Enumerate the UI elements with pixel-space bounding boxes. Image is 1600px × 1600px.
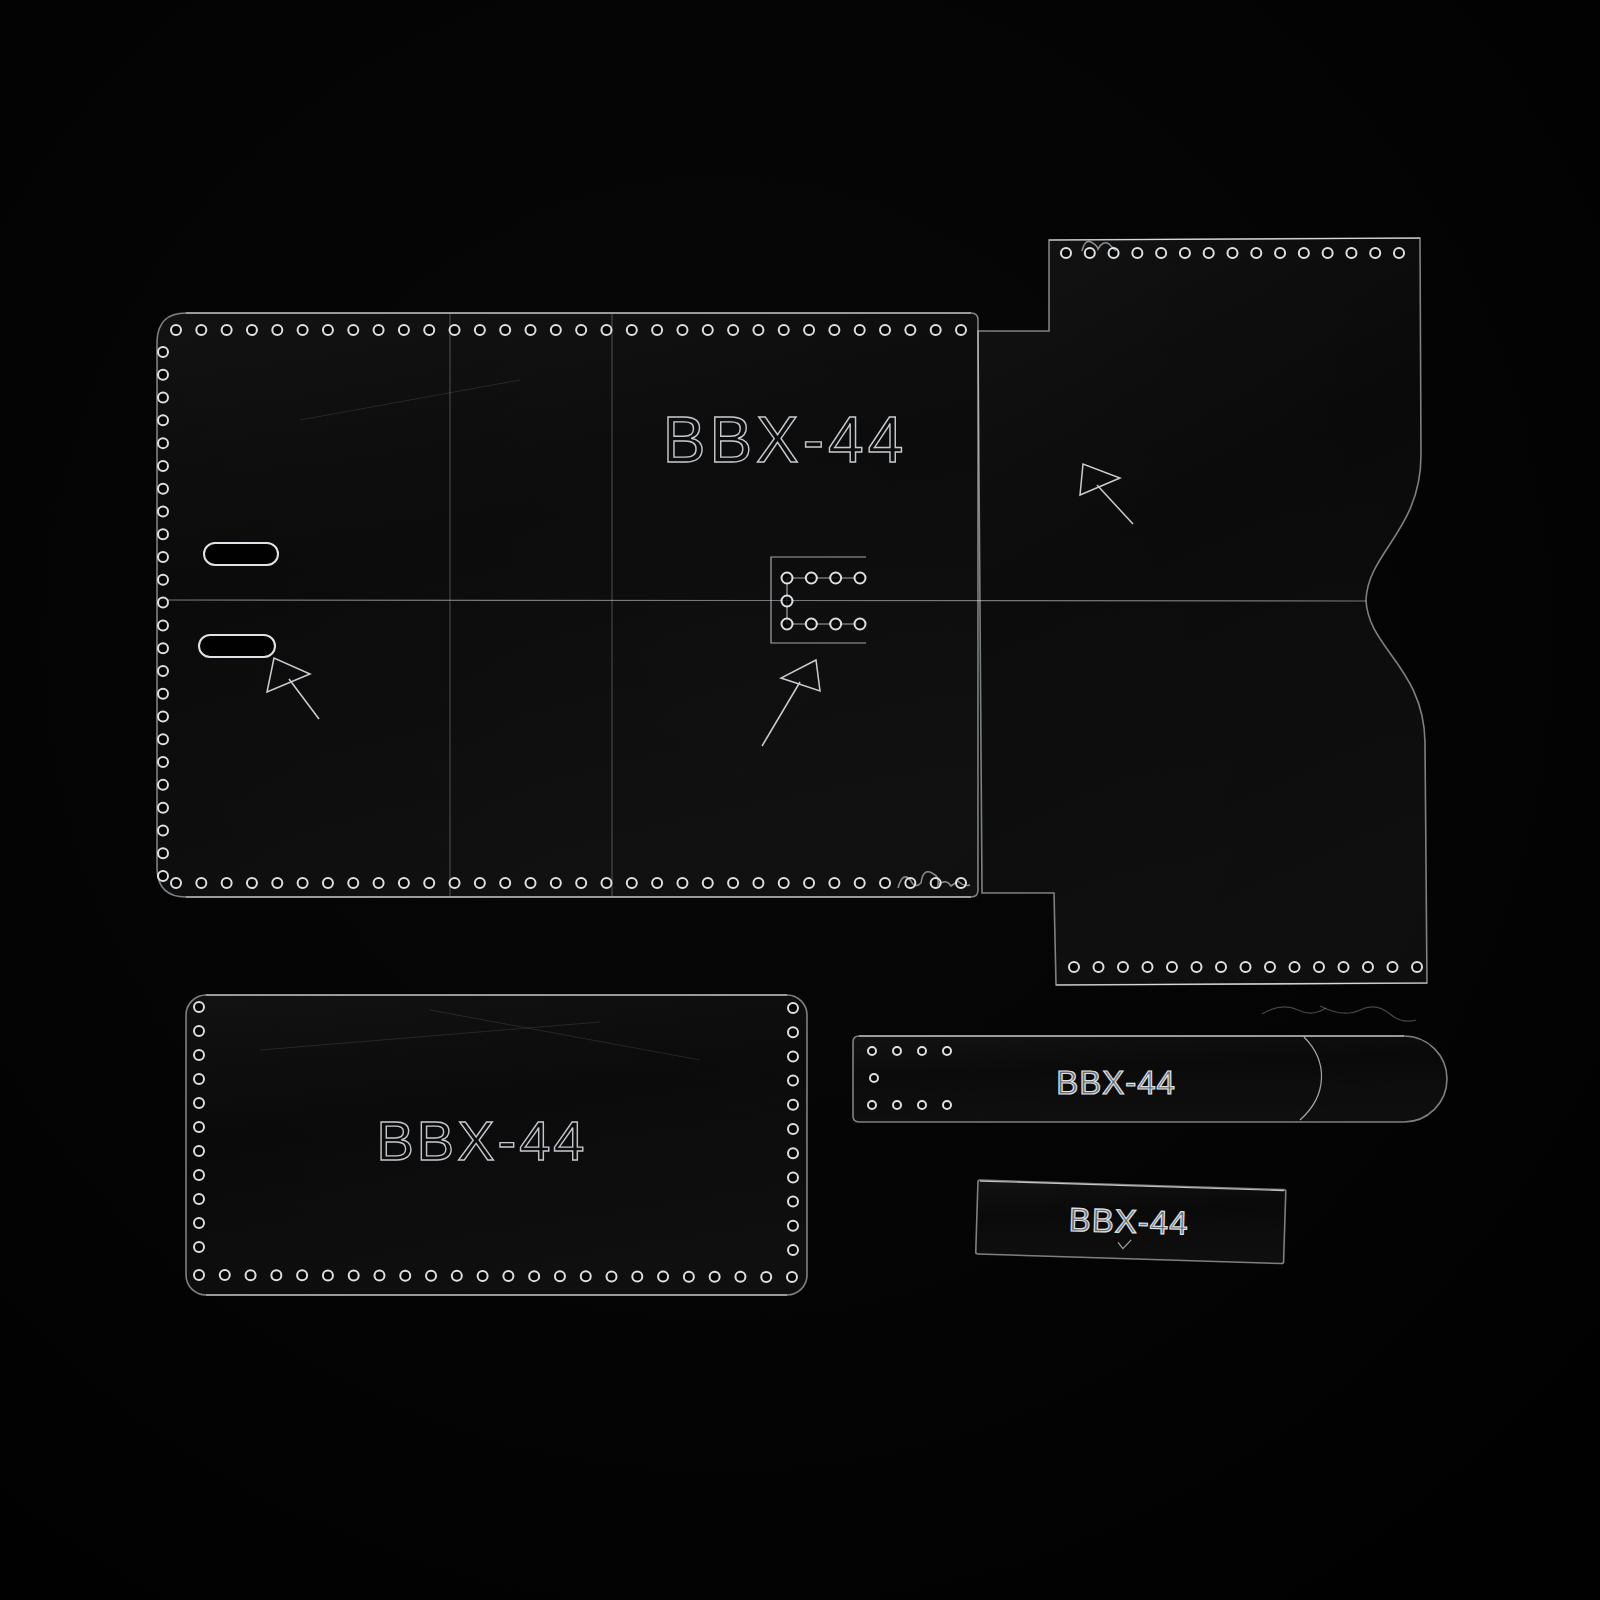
- stitch-hole: [526, 878, 536, 888]
- stitch-hole: [475, 878, 485, 888]
- stitch-hole: [943, 1101, 951, 1109]
- stitch-hole: [1394, 248, 1404, 258]
- stitch-hole: [323, 1270, 333, 1280]
- stitch-hole: [194, 1242, 204, 1252]
- main-body-part-code: BBX-44: [663, 404, 908, 476]
- stitch-hole: [323, 878, 333, 888]
- stitch-hole: [551, 878, 561, 888]
- stitch-hole: [652, 878, 662, 888]
- stitch-hole: [1069, 962, 1079, 972]
- stitch-hole: [478, 1271, 488, 1281]
- stitch-hole: [1061, 248, 1071, 258]
- stitch-hole: [272, 878, 282, 888]
- stitch-hole: [158, 347, 168, 357]
- stitch-hole: [601, 325, 611, 335]
- stitch-hole: [194, 1026, 204, 1036]
- stitch-hole: [1180, 248, 1190, 258]
- stitch-hole: [893, 1047, 901, 1055]
- stitch-hole: [194, 1002, 204, 1012]
- stitch-hole: [788, 1027, 798, 1037]
- stitch-hole: [943, 1047, 951, 1055]
- stitch-hole: [158, 803, 168, 813]
- stitch-hole: [956, 325, 966, 335]
- stitch-hole: [788, 1100, 798, 1110]
- stitch-hole: [601, 878, 611, 888]
- stitch-hole: [1132, 248, 1142, 258]
- stitch-hole: [500, 878, 510, 888]
- stitch-hole: [788, 1124, 798, 1134]
- stitch-hole: [880, 325, 890, 335]
- stitch-hole: [158, 825, 168, 835]
- stitch-hole: [158, 484, 168, 494]
- stitch-hole: [658, 1272, 668, 1282]
- stitch-hole: [905, 325, 915, 335]
- stitch-hole: [222, 878, 232, 888]
- stitch-hole: [158, 780, 168, 790]
- stitch-hole: [804, 878, 814, 888]
- stitch-hole: [1085, 248, 1095, 258]
- stitch-hole: [158, 734, 168, 744]
- stitch-hole: [710, 1272, 720, 1282]
- stitch-hole: [297, 1270, 307, 1280]
- stitch-hole: [503, 1271, 513, 1281]
- strap-part-code: BBX-44: [1056, 1064, 1176, 1101]
- stitch-hole: [1323, 248, 1333, 258]
- stitch-hole: [868, 1101, 876, 1109]
- stitch-hole: [374, 1271, 384, 1281]
- stitch-hole: [787, 1272, 797, 1282]
- stitch-hole: [806, 573, 817, 584]
- stitch-hole: [247, 878, 257, 888]
- stitch-hole: [158, 757, 168, 767]
- stitch-hole: [450, 878, 460, 888]
- product-photo-stage: BBX-44 BBX-44 BBX-44: [0, 0, 1600, 1600]
- stitch-hole: [1228, 248, 1238, 258]
- stitch-hole: [893, 1101, 901, 1109]
- stitch-hole: [222, 325, 232, 335]
- stitch-hole: [779, 878, 789, 888]
- stitch-hole: [1275, 248, 1285, 258]
- stitch-hole: [158, 370, 168, 380]
- stitch-hole: [788, 1221, 798, 1231]
- stitch-hole: [1216, 962, 1226, 972]
- pocket-part-code: BBX-44: [377, 1109, 588, 1172]
- stitch-hole: [677, 878, 687, 888]
- stitch-hole: [399, 878, 409, 888]
- stitch-hole: [158, 461, 168, 471]
- stitch-hole: [194, 1098, 204, 1108]
- stitch-hole: [529, 1271, 539, 1281]
- stitch-hole: [158, 871, 168, 881]
- stitch-hole: [1204, 248, 1214, 258]
- stitch-hole: [220, 1270, 230, 1280]
- strap-piece: BBX-44: [853, 1036, 1447, 1122]
- stitch-hole: [788, 1051, 798, 1061]
- stitch-hole: [158, 643, 168, 653]
- stitch-hole: [196, 325, 206, 335]
- acrylic-template-photo: BBX-44 BBX-44 BBX-44: [0, 0, 1600, 1600]
- stitch-hole: [247, 325, 257, 335]
- stitch-hole: [1346, 248, 1356, 258]
- stitch-hole: [158, 666, 168, 676]
- stitch-hole: [703, 878, 713, 888]
- stitch-hole: [1251, 248, 1261, 258]
- stitch-hole: [677, 325, 687, 335]
- stitch-hole: [298, 325, 308, 335]
- side-panel-outline: [978, 238, 1427, 985]
- stitch-hole: [374, 878, 384, 888]
- stitch-hole: [627, 878, 637, 888]
- stitch-hole: [1314, 962, 1324, 972]
- stitch-hole: [1192, 962, 1202, 972]
- stitch-hole: [782, 573, 793, 584]
- stitch-hole: [1412, 962, 1422, 972]
- stitch-hole: [703, 325, 713, 335]
- stitch-hole: [450, 325, 460, 335]
- stitch-hole: [918, 1101, 926, 1109]
- stitch-hole: [870, 1074, 878, 1082]
- stitch-hole: [1363, 962, 1373, 972]
- stitch-hole: [627, 325, 637, 335]
- stitch-hole: [158, 438, 168, 448]
- stitch-hole: [576, 878, 586, 888]
- stitch-hole: [194, 1218, 204, 1228]
- stitch-hole: [855, 878, 865, 888]
- small-tab-piece: BBX-44: [976, 1180, 1286, 1264]
- stitch-hole: [1339, 962, 1349, 972]
- stitch-hole: [374, 325, 384, 335]
- stitch-hole: [1265, 962, 1275, 972]
- stitch-hole: [348, 878, 358, 888]
- stitch-hole: [880, 878, 890, 888]
- main-body-outline: [157, 313, 978, 897]
- stitch-hole: [652, 325, 662, 335]
- stitch-hole: [804, 325, 814, 335]
- stitch-hole: [931, 325, 941, 335]
- stitch-hole: [830, 573, 841, 584]
- stitch-hole: [581, 1271, 591, 1281]
- stitch-hole: [158, 552, 168, 562]
- stitch-hole: [1241, 962, 1251, 972]
- stitch-hole: [171, 325, 181, 335]
- stitch-hole: [424, 878, 434, 888]
- stitch-hole: [1156, 248, 1166, 258]
- stitch-hole: [196, 878, 206, 888]
- stitch-hole: [426, 1271, 436, 1281]
- stitch-hole: [500, 325, 510, 335]
- stitch-hole: [1094, 962, 1104, 972]
- stitch-hole: [424, 325, 434, 335]
- stitch-hole: [1167, 962, 1177, 972]
- stitch-hole: [194, 1170, 204, 1180]
- stitch-hole: [158, 689, 168, 699]
- stitch-hole: [1143, 962, 1153, 972]
- stitch-hole: [158, 506, 168, 516]
- stitch-hole: [158, 712, 168, 722]
- stitch-hole: [788, 1003, 798, 1013]
- stitch-hole: [728, 325, 738, 335]
- stitch-hole: [931, 878, 941, 888]
- stitch-hole: [158, 393, 168, 403]
- stitch-hole: [788, 1076, 798, 1086]
- stitch-hole: [158, 620, 168, 630]
- stitch-hole: [298, 878, 308, 888]
- stitch-hole: [271, 1270, 281, 1280]
- stitch-hole: [158, 415, 168, 425]
- stitch-hole: [171, 878, 181, 888]
- stitch-hole: [1370, 248, 1380, 258]
- stitch-hole: [194, 1050, 204, 1060]
- stitch-hole: [684, 1272, 694, 1282]
- stitch-hole: [868, 1047, 876, 1055]
- stitch-hole: [526, 325, 536, 335]
- stitch-hole: [782, 619, 793, 630]
- stitch-hole: [753, 878, 763, 888]
- stitch-hole: [829, 878, 839, 888]
- stitch-hole: [753, 325, 763, 335]
- stitch-hole: [323, 325, 333, 335]
- stitch-hole: [918, 1047, 926, 1055]
- stitch-hole: [607, 1271, 617, 1281]
- stitch-hole: [158, 575, 168, 585]
- stitch-hole: [782, 596, 793, 607]
- stitch-hole: [779, 325, 789, 335]
- stitch-hole: [246, 1270, 256, 1280]
- stitch-hole: [399, 325, 409, 335]
- stitch-hole: [788, 1245, 798, 1255]
- stitch-hole: [829, 325, 839, 335]
- stitch-hole: [194, 1122, 204, 1132]
- stitch-hole: [272, 325, 282, 335]
- stitch-hole: [728, 878, 738, 888]
- stitch-hole: [632, 1271, 642, 1281]
- stitch-hole: [788, 1172, 798, 1182]
- stitch-hole: [761, 1272, 771, 1282]
- stitch-hole: [806, 619, 817, 630]
- stitch-hole: [735, 1272, 745, 1282]
- stitch-hole: [1290, 962, 1300, 972]
- stitch-hole: [194, 1074, 204, 1084]
- stitch-hole: [830, 619, 841, 630]
- stitch-hole: [400, 1271, 410, 1281]
- stitch-hole: [788, 1148, 798, 1158]
- stitch-hole: [158, 598, 168, 608]
- stitch-hole: [1118, 962, 1128, 972]
- stitch-hole: [551, 325, 561, 335]
- stitch-hole: [194, 1194, 204, 1204]
- stitch-hole: [475, 325, 485, 335]
- strap-slot-lower: [199, 635, 275, 657]
- stitch-hole: [349, 1271, 359, 1281]
- stitch-hole: [158, 848, 168, 858]
- small-tab-part-code: BBX-44: [1068, 1201, 1189, 1242]
- stitch-hole: [855, 619, 866, 630]
- stitch-hole: [788, 1197, 798, 1207]
- stitch-hole: [1388, 962, 1398, 972]
- stitch-hole: [855, 325, 865, 335]
- stitch-hole: [576, 325, 586, 335]
- stitch-hole: [348, 325, 358, 335]
- stitch-hole: [194, 1146, 204, 1156]
- stitch-hole: [855, 573, 866, 584]
- stitch-hole: [1299, 248, 1309, 258]
- pocket-piece: BBX-44: [186, 995, 807, 1295]
- stitch-hole: [452, 1271, 462, 1281]
- stitch-hole: [194, 1270, 204, 1280]
- stitch-hole: [555, 1271, 565, 1281]
- stitch-hole: [158, 529, 168, 539]
- strap-slot-upper: [204, 543, 278, 565]
